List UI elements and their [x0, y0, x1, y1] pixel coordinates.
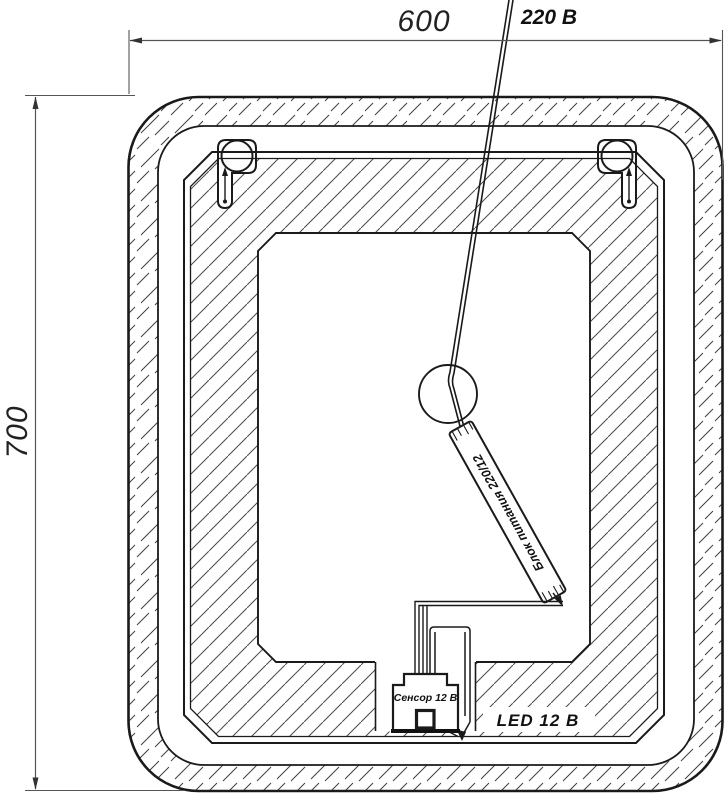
dim-height-label: 700: [1, 405, 34, 458]
sensor-label: Сенсор 12 В: [394, 692, 458, 704]
technical-drawing-canvas: Блок питания 220/12 Сенсор 12 В LED 12 В…: [0, 0, 728, 800]
sensor-touch-pad: [417, 711, 435, 729]
power-cable-label: 220 В: [520, 6, 577, 29]
led-label: LED 12 В: [497, 711, 580, 730]
keyhole-left-arrow-dot: [223, 200, 227, 204]
keyhole-right-arrow-dot: [627, 200, 631, 204]
mirror-wiring-diagram: Блок питания 220/12 Сенсор 12 В LED 12 В…: [0, 0, 728, 800]
dim-width-label: 600: [397, 5, 450, 38]
led-strip-label: LED 12 В: [483, 707, 595, 732]
